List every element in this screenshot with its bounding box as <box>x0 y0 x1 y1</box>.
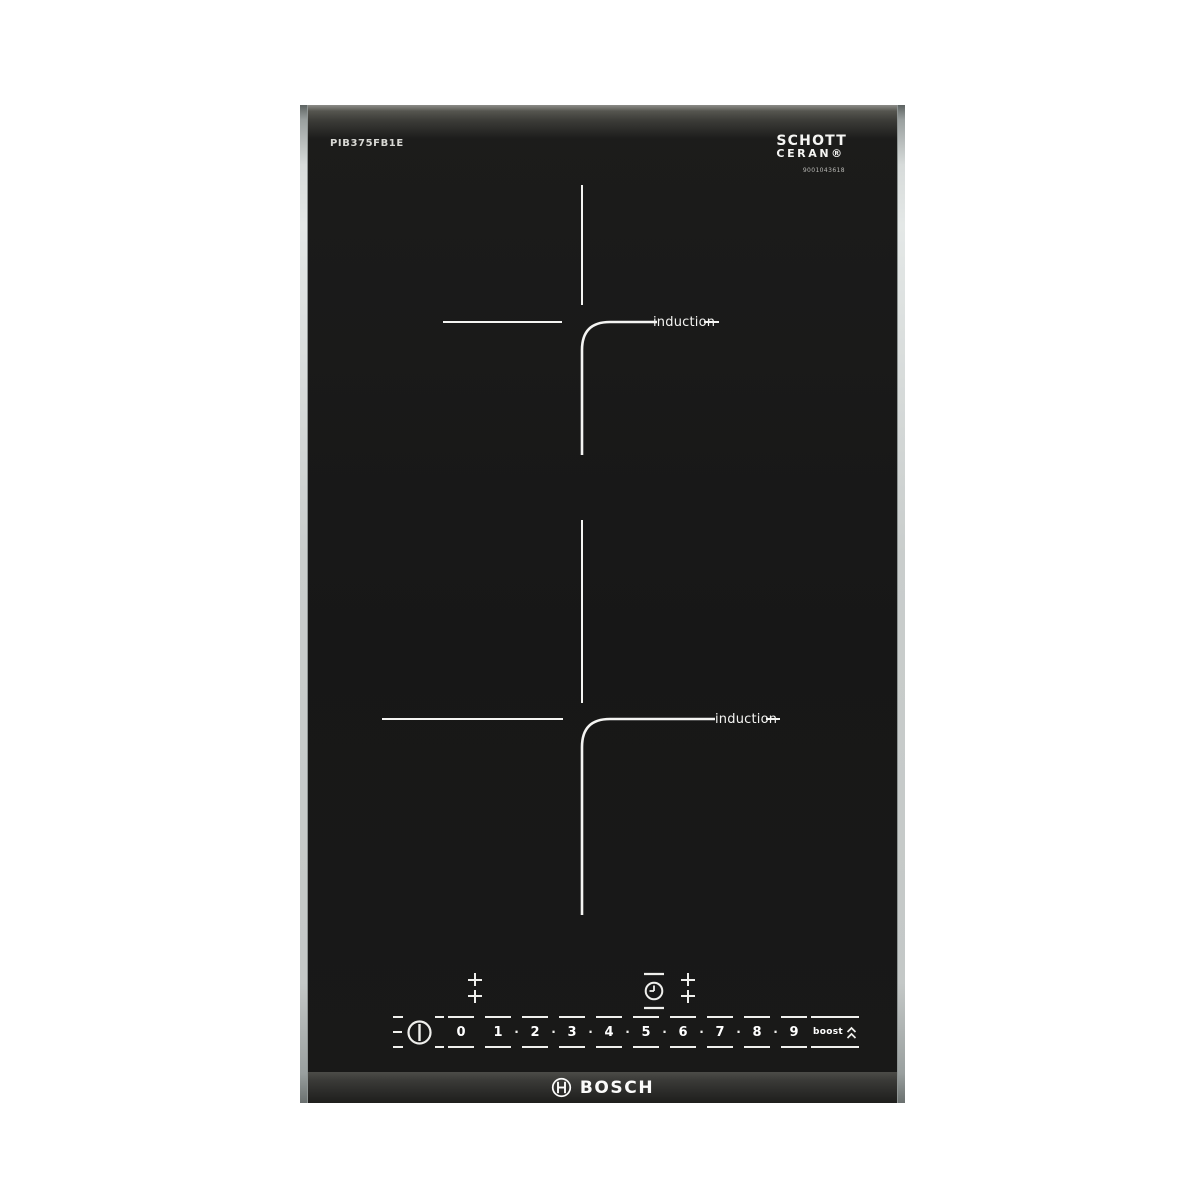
product-photo: PIB375FB1E SCHOTT CERAN® 9001043618 indu… <box>0 0 1200 1200</box>
slider-left-cap <box>393 1016 403 1048</box>
glass-serial-number: 9001043618 <box>803 167 845 174</box>
schott-ceran-logo: SCHOTT CERAN® <box>776 134 847 160</box>
level-separator-dot: · <box>624 1016 631 1048</box>
level-6-key[interactable]: 6 <box>670 1016 696 1048</box>
slider-spacer <box>435 1016 444 1048</box>
level-separator-dot: · <box>772 1016 779 1048</box>
zone1-right-dash <box>704 321 719 324</box>
zone2-induction-label: induction <box>715 712 765 727</box>
level-2-key[interactable]: 2 <box>522 1016 548 1048</box>
zone1-induction-label: induction <box>653 315 703 330</box>
level-separator-dot: · <box>735 1016 742 1048</box>
level-5-key[interactable]: 5 <box>633 1016 659 1048</box>
slider-gap <box>476 1016 483 1048</box>
induction-hob: PIB375FB1E SCHOTT CERAN® 9001043618 indu… <box>300 105 905 1103</box>
zone2-left-line <box>382 718 563 721</box>
right-steel-trim <box>897 105 905 1103</box>
zone1-top-line <box>581 185 584 305</box>
level-8-key[interactable]: 8 <box>744 1016 770 1048</box>
ceran-glass-surface <box>308 105 897 1072</box>
zone-select-icon[interactable] <box>466 971 484 1013</box>
zone1-corner-line <box>570 310 670 465</box>
level-separator-dot: · <box>661 1016 668 1048</box>
timer-clock-icon[interactable] <box>642 971 666 1015</box>
ceran-line: CERAN® <box>776 148 847 160</box>
boost-label: boost <box>813 1027 843 1037</box>
model-number-label: PIB375FB1E <box>330 138 404 149</box>
zone2-corner-line <box>570 707 720 917</box>
power-level-slider[interactable]: 0 1 · 2 · 3 · 4 · 5 · 6 · 7 · 8 · 9 boos… <box>393 1016 859 1048</box>
level-3-key[interactable]: 3 <box>559 1016 585 1048</box>
level-4-key[interactable]: 4 <box>596 1016 622 1048</box>
level-1-key[interactable]: 1 <box>485 1016 511 1048</box>
level-separator-dot: · <box>698 1016 705 1048</box>
power-button[interactable] <box>406 1016 433 1048</box>
bosch-armature-icon <box>551 1077 572 1098</box>
double-chevron-up-icon <box>846 1026 857 1039</box>
level-0-key[interactable]: 0 <box>448 1016 474 1048</box>
zone-select-icon[interactable] <box>679 971 697 1013</box>
zone2-top-line <box>581 520 584 703</box>
schott-line: SCHOTT <box>776 134 847 148</box>
left-steel-trim <box>300 105 308 1103</box>
brand-wordmark: BOSCH <box>580 1078 654 1098</box>
level-separator-dot: · <box>513 1016 520 1048</box>
level-separator-dot: · <box>587 1016 594 1048</box>
level-7-key[interactable]: 7 <box>707 1016 733 1048</box>
power-icon <box>406 1019 433 1046</box>
boost-button[interactable]: boost <box>811 1016 859 1048</box>
front-edge-band: BOSCH <box>308 1072 897 1103</box>
zone2-right-dash <box>766 718 780 721</box>
level-separator-dot: · <box>550 1016 557 1048</box>
zone1-left-line <box>443 321 562 324</box>
level-9-key[interactable]: 9 <box>781 1016 807 1048</box>
